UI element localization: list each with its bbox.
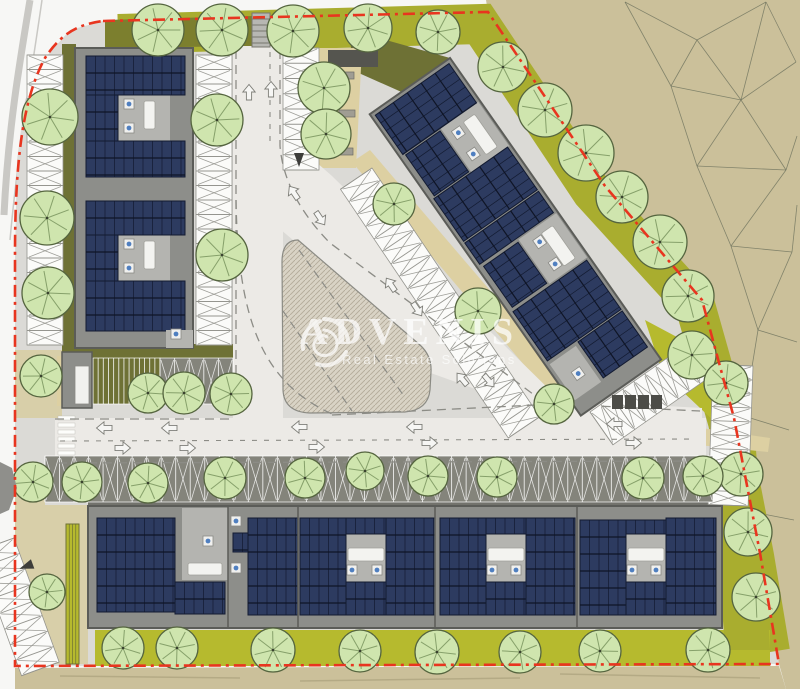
- tree-trunk: [691, 354, 694, 357]
- rooflight-dome: [127, 266, 132, 271]
- tree-trunk: [81, 481, 84, 484]
- solar-panel-array: [86, 235, 118, 281]
- tree: [20, 355, 62, 397]
- tree: [210, 373, 252, 415]
- tree: [477, 457, 517, 497]
- rooflight-dome: [127, 102, 132, 107]
- tree: [416, 10, 460, 54]
- tree: [285, 458, 325, 498]
- rooflight-dome: [654, 568, 659, 573]
- tree-trunk: [393, 203, 396, 206]
- tree-branch: [231, 393, 249, 394]
- tree-trunk: [224, 477, 227, 480]
- tree-trunk: [221, 29, 224, 32]
- tree: [191, 94, 243, 146]
- tree-trunk: [659, 241, 662, 244]
- solar-panel-array: [666, 518, 716, 615]
- rooflight-dome: [234, 566, 239, 571]
- tree-branch: [689, 650, 708, 651]
- tree: [534, 384, 574, 424]
- tree-trunk: [367, 27, 370, 30]
- tree: [163, 372, 205, 414]
- tree: [622, 457, 664, 499]
- solar-panel-array: [175, 582, 225, 614]
- rooflight-dome: [127, 126, 132, 131]
- crosswalk-bar: [58, 444, 75, 448]
- solar-panel-array: [233, 533, 249, 552]
- tree-trunk: [621, 196, 624, 199]
- tree: [13, 462, 53, 502]
- tree-trunk: [359, 650, 362, 653]
- tree-trunk: [230, 393, 233, 396]
- tree-trunk: [216, 119, 219, 122]
- tree-trunk: [599, 650, 602, 653]
- tree-trunk: [157, 29, 160, 32]
- tree-trunk: [32, 481, 35, 484]
- tree-branch: [176, 648, 177, 666]
- rooflight-dome: [127, 242, 132, 247]
- tree-trunk: [304, 477, 307, 480]
- rooflight-dome: [490, 568, 495, 573]
- solar-panel-array: [86, 281, 185, 331]
- roof-ridge-vent: [628, 548, 664, 561]
- annex-door: [75, 366, 89, 404]
- tree-trunk: [49, 116, 52, 119]
- tree-trunk: [544, 109, 547, 112]
- tree-trunk: [46, 591, 49, 594]
- tree-trunk: [147, 392, 150, 395]
- utility-box: [638, 395, 649, 409]
- tree: [346, 452, 384, 490]
- rooflight-dome: [630, 568, 635, 573]
- solar-panel-array: [86, 56, 185, 95]
- solar-panel-array: [580, 520, 626, 615]
- road-vertical: [233, 46, 283, 418]
- tree: [455, 288, 501, 334]
- solar-panel-array: [526, 518, 575, 615]
- tree: [204, 457, 246, 499]
- tree-trunk: [502, 66, 505, 69]
- rooflight-dome: [206, 539, 211, 544]
- tree-trunk: [47, 292, 50, 295]
- tree-trunk: [40, 375, 43, 378]
- tree-trunk: [176, 647, 179, 650]
- tree: [102, 627, 144, 669]
- tree-trunk: [687, 295, 690, 298]
- tree-trunk: [46, 217, 49, 220]
- roof-ridge-vent: [188, 563, 222, 575]
- tree: [704, 361, 748, 405]
- tree-trunk: [740, 473, 743, 476]
- site-plan: ADVENIS Real Estate Solutions: [0, 0, 800, 689]
- roof-ridge-vent: [144, 101, 155, 129]
- tree: [344, 4, 392, 52]
- tree: [683, 456, 723, 496]
- tree: [196, 4, 248, 56]
- tree-trunk: [272, 649, 275, 652]
- tree: [408, 456, 448, 496]
- solar-panel-array: [626, 520, 666, 534]
- tree: [20, 191, 74, 245]
- tree-trunk: [755, 596, 758, 599]
- solar-panel-array: [440, 518, 486, 615]
- tree: [29, 574, 65, 610]
- tree-trunk: [747, 531, 750, 534]
- tree-trunk: [707, 649, 710, 652]
- tree: [128, 463, 168, 503]
- tree-trunk: [477, 310, 480, 313]
- tree: [62, 462, 102, 502]
- tree: [596, 171, 648, 223]
- tree: [518, 83, 572, 137]
- solar-panel-array: [248, 518, 298, 615]
- rooflight-dome: [514, 568, 519, 573]
- site-plan-drawing: [0, 0, 800, 689]
- tree: [22, 267, 74, 319]
- tree-trunk: [147, 482, 150, 485]
- roof-ridge-vent: [144, 241, 155, 269]
- tree: [132, 4, 184, 56]
- solar-panel-array: [86, 141, 185, 177]
- tree: [298, 62, 350, 114]
- rooflight-dome: [174, 332, 179, 337]
- tree-trunk: [183, 392, 186, 395]
- tree: [373, 183, 415, 225]
- tree: [732, 573, 780, 621]
- tree: [301, 109, 351, 159]
- utility-box: [651, 395, 662, 409]
- rooflight-dome: [234, 519, 239, 524]
- tree-branch: [437, 32, 438, 51]
- tree: [415, 630, 459, 674]
- tree-branch: [326, 113, 327, 134]
- crosswalk-bar: [58, 423, 75, 427]
- building-west: [75, 48, 193, 348]
- tree: [196, 229, 248, 281]
- tree: [128, 373, 168, 413]
- tree-trunk: [553, 403, 556, 406]
- utility-box: [625, 395, 636, 409]
- tree-trunk: [437, 31, 440, 34]
- solar-panel-array: [486, 518, 526, 534]
- building-south: [88, 506, 722, 628]
- tree-trunk: [292, 30, 295, 33]
- solar-panel-array: [346, 518, 386, 534]
- tree-trunk: [585, 152, 588, 155]
- tree-trunk: [364, 470, 367, 473]
- tree-trunk: [436, 651, 439, 654]
- roof-ridge-vent: [348, 548, 384, 561]
- tree: [633, 215, 687, 269]
- tree: [478, 42, 528, 92]
- tree: [156, 627, 198, 669]
- crosswalk-bar: [58, 451, 75, 455]
- tree-trunk: [427, 475, 430, 478]
- solar-panel-array: [386, 518, 435, 615]
- tree-trunk: [122, 647, 125, 650]
- tree-trunk: [221, 254, 224, 257]
- rooflight-dome: [350, 568, 355, 573]
- tree-trunk: [496, 476, 499, 479]
- tree-branch: [666, 296, 688, 297]
- tree: [267, 5, 319, 57]
- roof-ridge-vent: [488, 548, 524, 561]
- tree-trunk: [519, 651, 522, 654]
- solar-panel-array: [300, 518, 346, 615]
- crosswalk-bar: [58, 437, 75, 441]
- crosswalk-bar: [58, 430, 75, 434]
- utility-box: [612, 395, 623, 409]
- tree: [724, 508, 772, 556]
- solar-panel-array: [86, 95, 118, 141]
- tree: [499, 631, 541, 673]
- tree-trunk: [702, 475, 705, 478]
- tree-trunk: [642, 477, 645, 480]
- rooflight-dome: [375, 568, 380, 573]
- tree-trunk: [323, 87, 326, 90]
- tree-trunk: [325, 133, 328, 136]
- tree: [558, 125, 614, 181]
